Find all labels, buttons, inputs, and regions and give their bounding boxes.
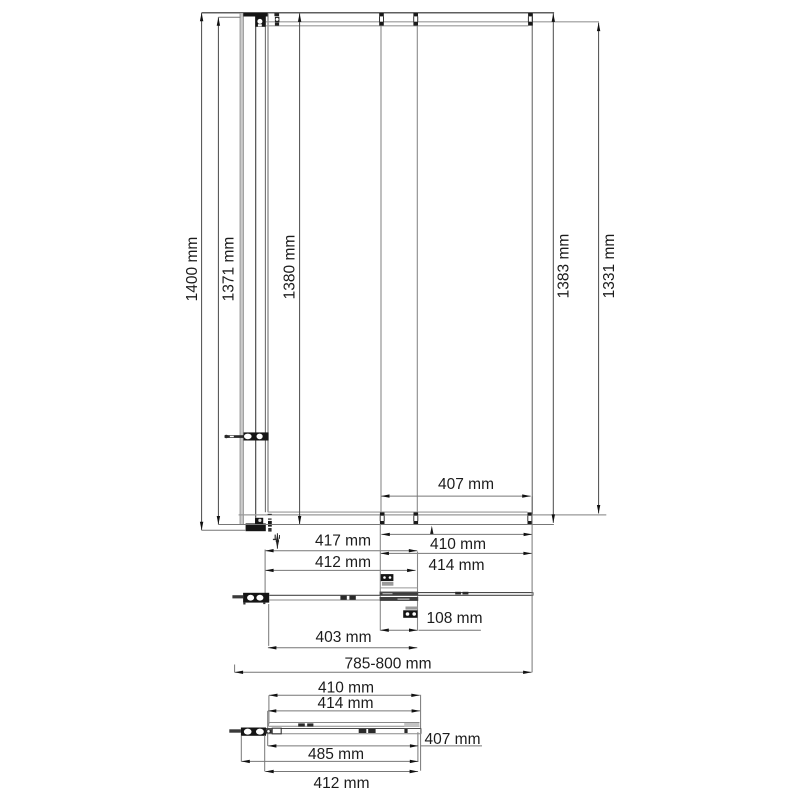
svg-text:412 mm: 412 mm bbox=[314, 775, 370, 792]
svg-text:485 mm: 485 mm bbox=[308, 746, 364, 763]
svg-text:1400 mm: 1400 mm bbox=[184, 237, 201, 302]
svg-text:1331 mm: 1331 mm bbox=[601, 234, 618, 299]
svg-text:410 mm: 410 mm bbox=[430, 536, 486, 553]
svg-text:1383 mm: 1383 mm bbox=[555, 234, 572, 299]
svg-text:410 mm: 410 mm bbox=[318, 680, 374, 697]
svg-text:407 mm: 407 mm bbox=[425, 731, 481, 748]
svg-text:412 mm: 412 mm bbox=[315, 554, 371, 571]
svg-text:403 mm: 403 mm bbox=[316, 629, 372, 646]
svg-text:417 mm: 417 mm bbox=[315, 532, 371, 549]
svg-text:1371 mm: 1371 mm bbox=[221, 237, 238, 302]
svg-text:414 mm: 414 mm bbox=[318, 695, 374, 712]
svg-text:407 mm: 407 mm bbox=[438, 476, 494, 493]
svg-text:1380 mm: 1380 mm bbox=[282, 235, 299, 300]
svg-text:108 mm: 108 mm bbox=[427, 610, 483, 627]
svg-text:785-800 mm: 785-800 mm bbox=[344, 655, 431, 672]
svg-text:414 mm: 414 mm bbox=[429, 557, 485, 574]
